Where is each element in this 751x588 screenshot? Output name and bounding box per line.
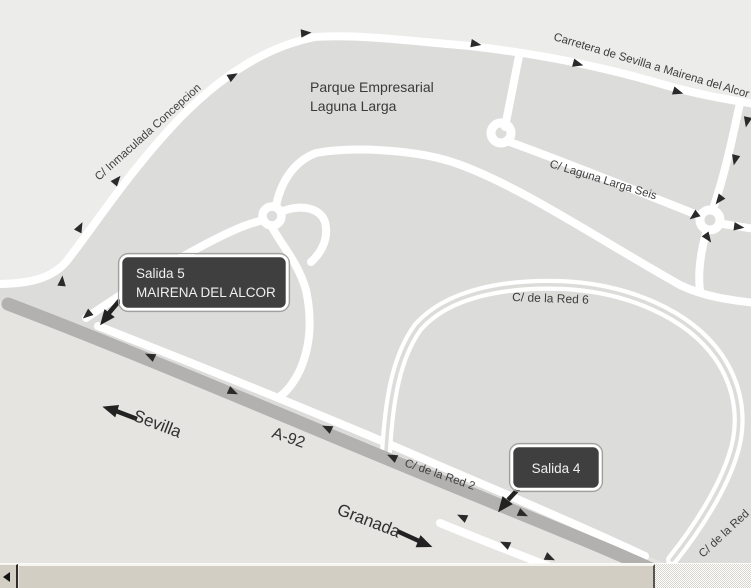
scroll-left-button[interactable] — [0, 564, 18, 588]
left-arrow-icon — [3, 572, 10, 582]
road-map-canvas: Parque Empresarial Laguna Larga C/ Inmac… — [0, 0, 751, 563]
map-viewer-window: Parque Empresarial Laguna Larga C/ Inmac… — [0, 0, 751, 588]
salida5-line1: Salida 5 — [136, 266, 185, 281]
scrollbar-thumb[interactable] — [18, 564, 655, 588]
street-label-red6: C/ de la Red 6 — [512, 290, 589, 307]
area-label-line1: Parque Empresarial — [310, 79, 434, 95]
horizontal-scrollbar[interactable] — [0, 563, 751, 588]
salida5-line2: MAIRENA DEL ALCOR — [136, 285, 276, 300]
salida4-label: Salida 4 — [532, 461, 581, 476]
salida4-sign: Salida 4 — [510, 444, 603, 492]
area-label-line2: Laguna Larga — [310, 98, 397, 114]
salida5-sign: Salida 5 MAIRENA DEL ALCOR — [119, 254, 290, 312]
